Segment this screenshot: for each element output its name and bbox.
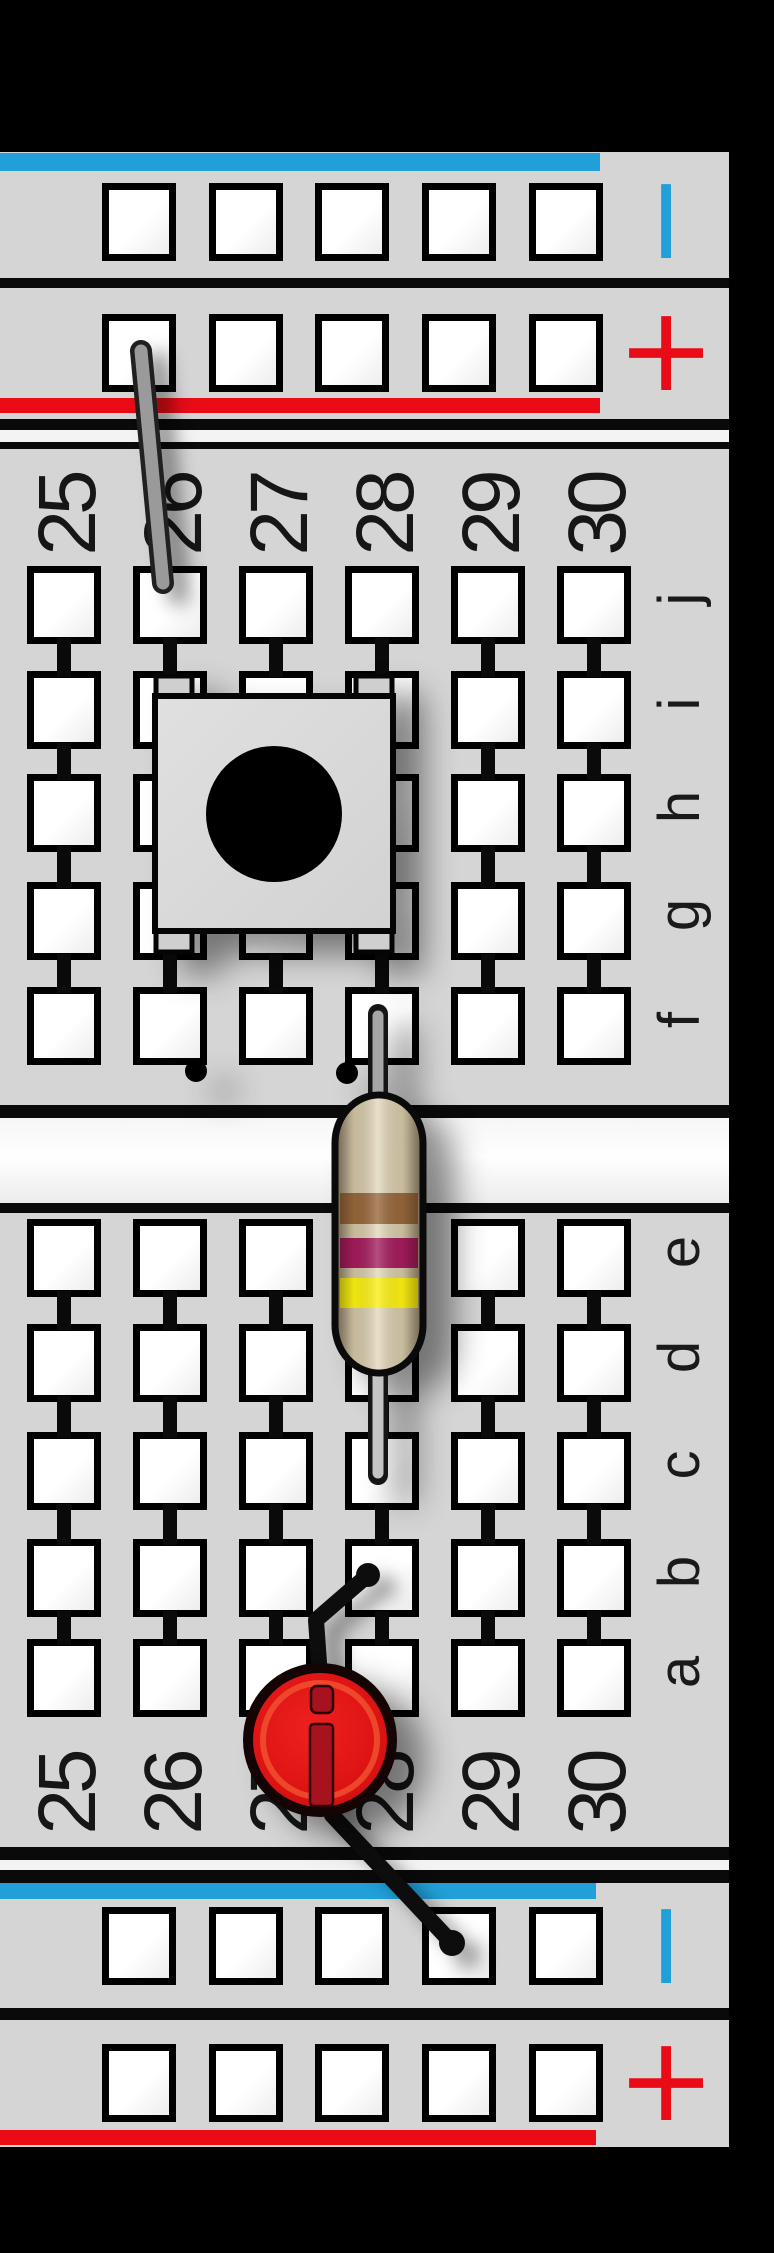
- pushbutton-leg-tip: [336, 1062, 358, 1084]
- breadboard-diagram: 252526262727282829293030jihgfedcba − + −…: [0, 0, 774, 2253]
- led[interactable]: [248, 1668, 392, 1812]
- led-marker-dot: [311, 1686, 333, 1713]
- gray-jumper-wire[interactable]: [141, 351, 163, 583]
- pushbutton-leg-tip: [185, 1060, 207, 1082]
- components-layer: [0, 0, 774, 2253]
- pushbutton-cap: [206, 746, 342, 882]
- pushbutton[interactable]: [155, 676, 393, 1084]
- led-marker-bar: [310, 1724, 333, 1806]
